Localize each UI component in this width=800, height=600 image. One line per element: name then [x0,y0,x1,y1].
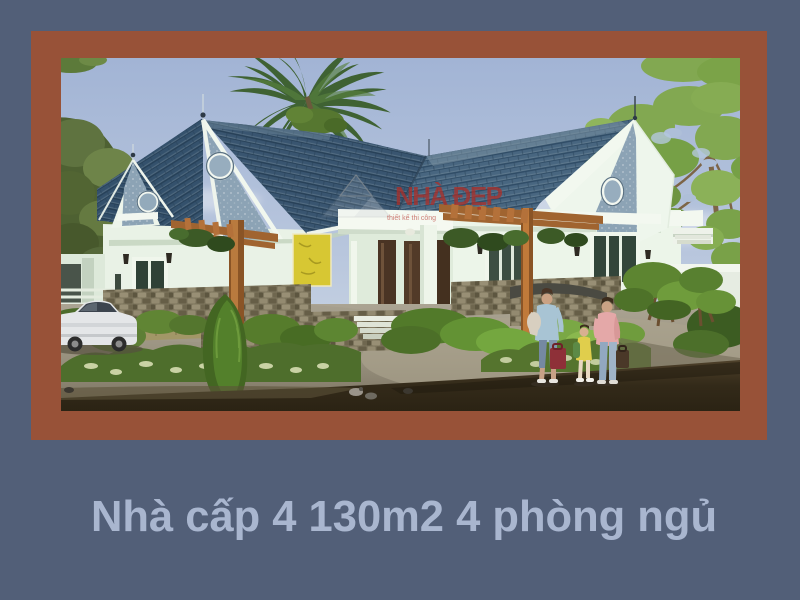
svg-text:NHÀ ĐẸP: NHÀ ĐẸP [395,181,503,211]
svg-text:thiết kế thi công: thiết kế thi công [387,213,436,222]
